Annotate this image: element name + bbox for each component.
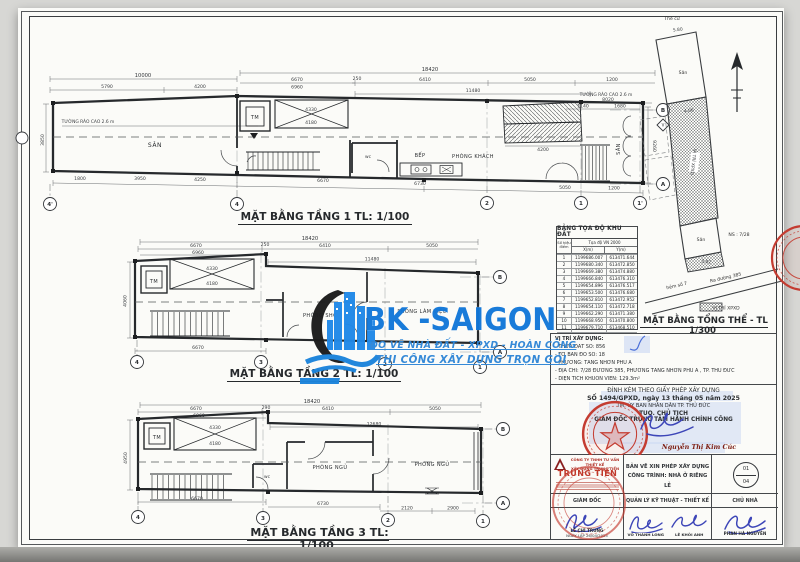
coordinate-table-body: 11199686.007613471.64421199680.340613472… — [557, 254, 637, 346]
table-cell: 1199680.340 — [572, 262, 607, 268]
table-row: 71199652.810613472.952 — [557, 296, 637, 303]
table-cell: 7 — [557, 297, 572, 303]
table-cell: 1199666.840 — [572, 276, 607, 282]
sheet-total: 04 — [734, 479, 758, 485]
location-line: - THỬA ĐẤT SỐ: 856 — [555, 344, 772, 352]
table-cell: 613472.850 — [607, 262, 637, 268]
engineer-name: LÊ KHÔI ANH — [668, 532, 712, 537]
table-row: 21199680.340613472.850 — [557, 261, 637, 268]
location-line: - TỜ BẢN ĐỒ SỐ: 18 — [555, 352, 772, 360]
official-signer-name: Nguyễn Thị Kim Cúc — [639, 443, 759, 451]
role-owner-label: CHỦ NHÀ — [712, 494, 778, 508]
location-heading: VỊ TRÍ XÂY DỰNG: — [555, 336, 772, 344]
watermark: BK -SAIGON ĐO VẼ NHÀ ĐẤT - XPXD - HOÀN C… — [300, 282, 540, 392]
table-cell: 4 — [557, 276, 572, 282]
table-cell: 10 — [557, 318, 572, 324]
table-row: 11199686.007613471.644 — [557, 254, 637, 261]
table-cell: 613476.310 — [607, 276, 637, 282]
table-cell: 613471.644 — [607, 255, 637, 261]
company-red-stamp-icon — [543, 463, 639, 547]
table-row: 91199662.290613471.380 — [557, 310, 637, 317]
sheet-number: 01 — [734, 466, 758, 472]
title-block: CÔNG TY TNHH TƯ VẤN THIẾT KẾ XÂY DỰNG TR… — [550, 455, 777, 540]
watermark-tagline: THI CÔNG XÂY DỰNG TRỌN GÓI — [376, 354, 567, 366]
location-line: - DIỆN TÍCH KHUÔN VIÊN: 129.3m² — [555, 376, 772, 384]
table-cell: 3 — [557, 269, 572, 275]
column-header-group: Tọa độ VN 2000 — [572, 239, 637, 247]
table-cell: 5 — [557, 283, 572, 289]
table-cell: 613468.510 — [607, 325, 637, 331]
check-mark-icon — [624, 334, 652, 354]
table-cell: 613471.380 — [607, 311, 637, 317]
table-row: 31199669.380613474.880 — [557, 268, 637, 275]
table-row: 111199679.710613468.510 — [557, 324, 637, 331]
floor1-title: MẶT BẰNG TẦNG 1 TL: 1/100 — [235, 211, 415, 223]
desk-shadow — [0, 547, 800, 562]
title-block-company-column: CÔNG TY TNHH TƯ VẤN THIẾT KẾ XÂY DỰNG TR… — [551, 455, 624, 539]
column-header-y: Y(m) — [605, 247, 637, 253]
watermark-tagline: ĐO VẼ NHÀ ĐẤT - XPXD - HOÀN CÔNG — [370, 340, 576, 351]
signature-icon — [637, 407, 709, 441]
location-line: - ĐỊA CHỈ: 7/28 ĐƯỜNG 385, PHƯỜNG TĂNG N… — [555, 368, 772, 376]
table-cell: 9 — [557, 311, 572, 317]
table-cell: 1199669.380 — [572, 269, 607, 275]
table-cell: 613472.952 — [607, 297, 637, 303]
location-lines: - THỬA ĐẤT SỐ: 856- TỜ BẢN ĐỒ SỐ: 18- PH… — [555, 344, 772, 384]
table-cell: 1199653.500 — [572, 290, 607, 296]
permit-line: ĐÍNH KÈM THEO GIẤY PHÉP XÂY DỰNG — [551, 388, 776, 394]
table-cell: 1199662.290 — [572, 311, 607, 317]
table-cell: 2 — [557, 262, 572, 268]
table-cell: 613476.517 — [607, 283, 637, 289]
table-row: 51199654.896613476.517 — [557, 282, 637, 289]
divider — [736, 475, 756, 476]
title-block-owner-column: 01 04 CHỦ NHÀ PHAN HÀ NGUYÊN — [712, 455, 778, 539]
table-cell: 1199654.110 — [572, 304, 607, 310]
table-cell: 1199668.950 — [572, 318, 607, 324]
column-header-point: Số hiệu điểm — [557, 239, 572, 253]
watermark-brand: BK -SAIGON — [364, 302, 556, 338]
table-cell: 11 — [557, 325, 572, 331]
table-cell: 6 — [557, 290, 572, 296]
table-row: 61199653.500613476.680 — [557, 289, 637, 296]
table-cell: 1 — [557, 255, 572, 261]
table-cell: 1199654.896 — [572, 283, 607, 289]
table-row: 101199668.950613470.800 — [557, 317, 637, 324]
table-cell: 1199652.810 — [572, 297, 607, 303]
table-row: 41199666.840613476.310 — [557, 275, 637, 282]
table-cell: 1199686.007 — [572, 255, 607, 261]
edge-red-stamp-icon — [768, 224, 800, 292]
table-cell: 613470.800 — [607, 318, 637, 324]
table-cell: 613476.680 — [607, 290, 637, 296]
scanned-drawing-page: { "sheet": {"bg":"#fbfbf8","line":"#3a3d… — [0, 0, 800, 562]
sheet-number-badge: 01 04 — [733, 462, 759, 488]
location-line: - PHƯỜNG: TĂNG NHƠN PHÚ A — [555, 360, 772, 368]
owner-name: PHAN HÀ NGUYÊN — [712, 531, 778, 536]
location-info-block: VỊ TRÍ XÂY DỰNG: - THỬA ĐẤT SỐ: 856- TỜ … — [550, 333, 777, 385]
column-header-x: X(m) — [572, 247, 605, 253]
table-cell: 1199679.710 — [572, 325, 607, 331]
coordinate-table-title: BẢNG TỌA ĐỘ KHU ĐẤT — [557, 227, 637, 239]
table-cell: 8 — [557, 304, 572, 310]
table-cell: 613474.880 — [607, 269, 637, 275]
signature-icon — [668, 508, 710, 532]
permit-approval-block: ĐÍNH KÈM THEO GIẤY PHÉP XÂY DỰNG SỐ 1494… — [550, 385, 777, 455]
table-cell: 613472.718 — [607, 304, 637, 310]
coordinate-table: BẢNG TỌA ĐỘ KHU ĐẤT Số hiệu điểm Tọa độ … — [556, 226, 638, 330]
table-row: 81199654.110613472.718 — [557, 303, 637, 310]
